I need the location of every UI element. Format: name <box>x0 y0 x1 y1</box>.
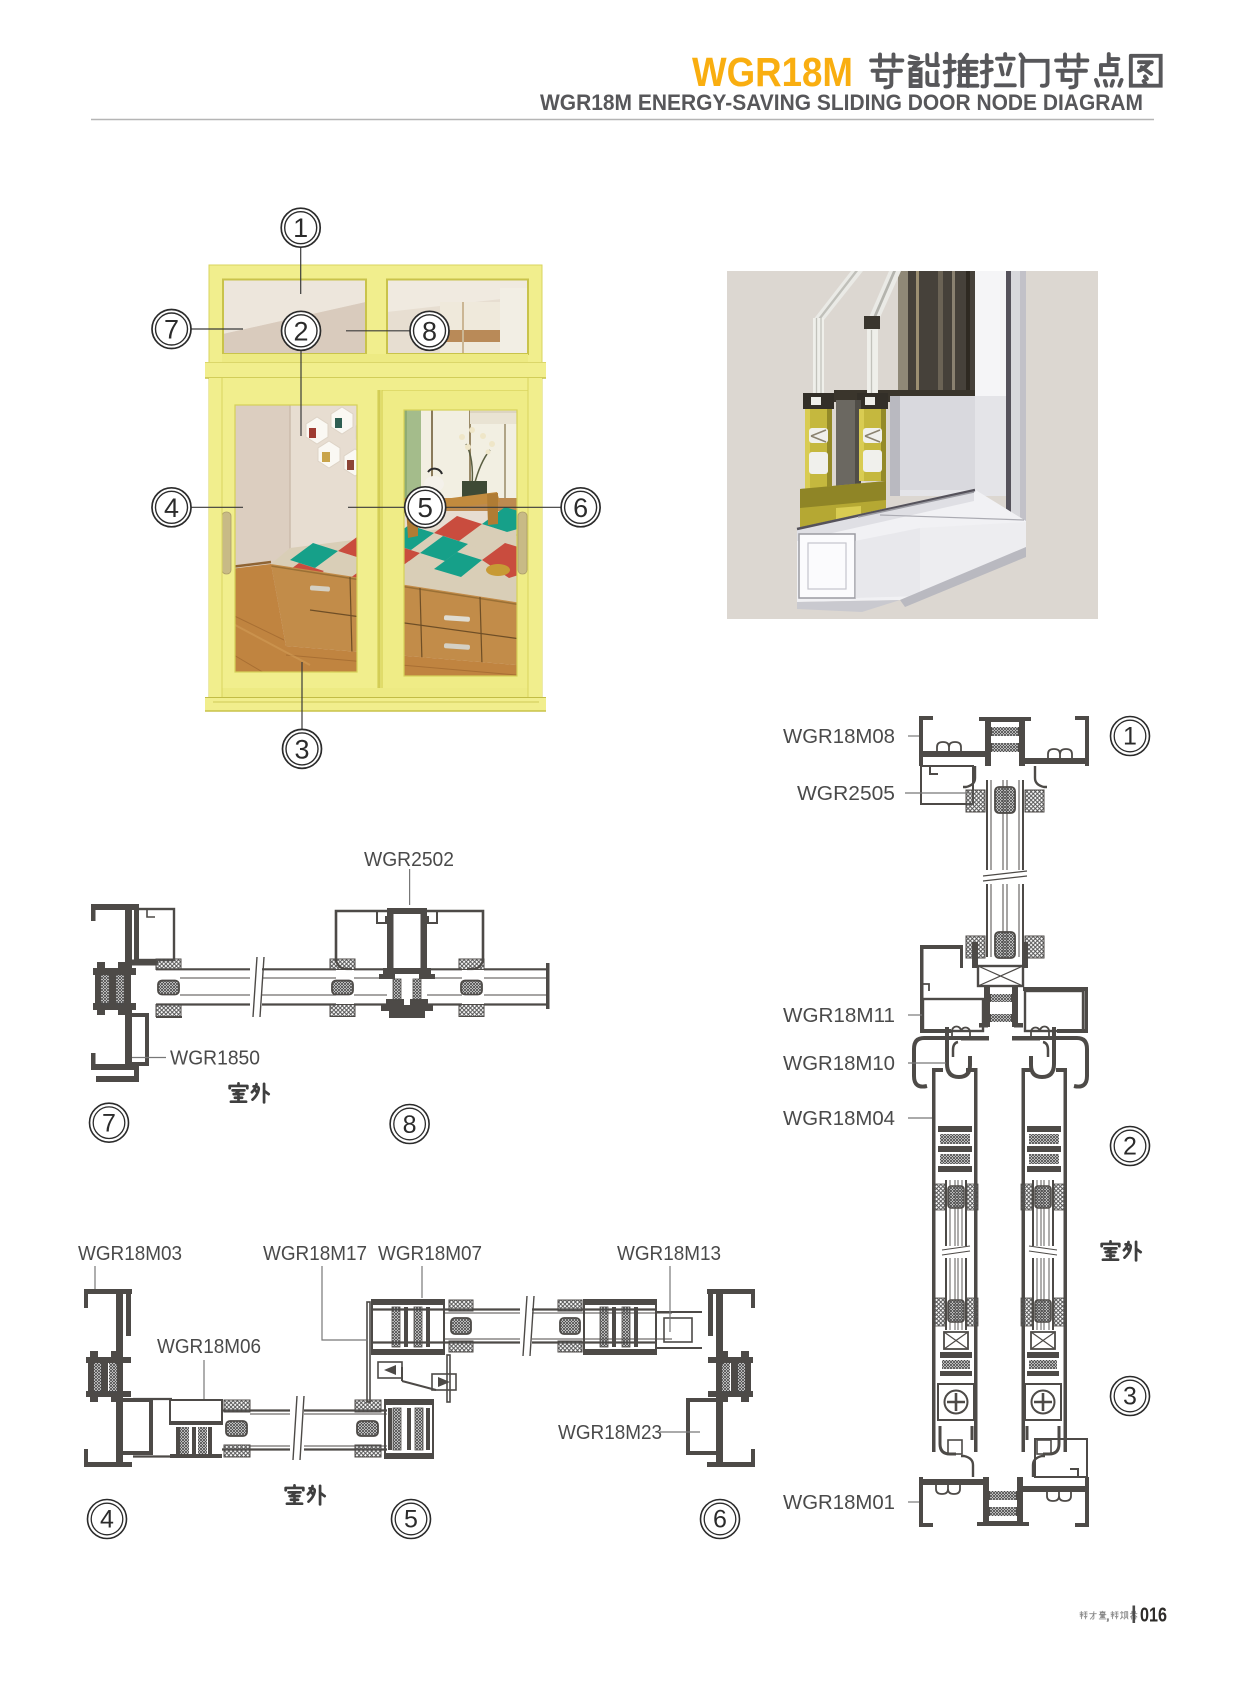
svg-text:2: 2 <box>1123 1133 1137 1161</box>
svg-text:WGR18M13: WGR18M13 <box>617 1242 721 1265</box>
svg-text:6: 6 <box>573 493 588 523</box>
svg-text:5: 5 <box>417 492 433 523</box>
svg-text:4: 4 <box>100 1506 114 1534</box>
svg-text:WGR18M03: WGR18M03 <box>78 1242 182 1265</box>
svg-text:WGR1850: WGR1850 <box>170 1047 260 1070</box>
svg-text:016: 016 <box>1140 1604 1167 1627</box>
svg-text:WGR18M11: WGR18M11 <box>783 1004 895 1027</box>
svg-text:7: 7 <box>164 315 179 345</box>
svg-text:WGR18M08: WGR18M08 <box>783 725 895 748</box>
svg-text:WGR18M ENERGY-SAVING SLIDING D: WGR18M ENERGY-SAVING SLIDING DOOR NODE D… <box>540 90 1143 115</box>
svg-text:WGR18M: WGR18M <box>692 49 853 95</box>
svg-text:8: 8 <box>422 316 437 346</box>
svg-text:WGR18M01: WGR18M01 <box>783 1491 895 1514</box>
svg-text:3: 3 <box>1123 1383 1137 1411</box>
svg-text:WGR2502: WGR2502 <box>364 848 454 871</box>
svg-text:WGR18M07: WGR18M07 <box>378 1242 482 1265</box>
svg-text:3: 3 <box>294 734 309 764</box>
svg-text:4: 4 <box>164 493 179 523</box>
svg-text:2: 2 <box>293 316 308 346</box>
svg-text:WGR2505: WGR2505 <box>797 782 895 805</box>
svg-text:,: , <box>1107 1612 1110 1623</box>
svg-text:8: 8 <box>403 1111 417 1139</box>
svg-text:1: 1 <box>1123 723 1137 751</box>
svg-text:WGR18M04: WGR18M04 <box>783 1107 895 1130</box>
svg-text:WGR18M06: WGR18M06 <box>157 1335 261 1358</box>
svg-text:6: 6 <box>713 1506 727 1534</box>
svg-text:WGR18M17: WGR18M17 <box>263 1242 367 1265</box>
svg-text:5: 5 <box>404 1506 418 1534</box>
svg-text:7: 7 <box>102 1110 116 1138</box>
svg-text:1: 1 <box>293 213 308 243</box>
svg-text:WGR18M23: WGR18M23 <box>558 1421 662 1444</box>
svg-text:WGR18M10: WGR18M10 <box>783 1052 895 1075</box>
